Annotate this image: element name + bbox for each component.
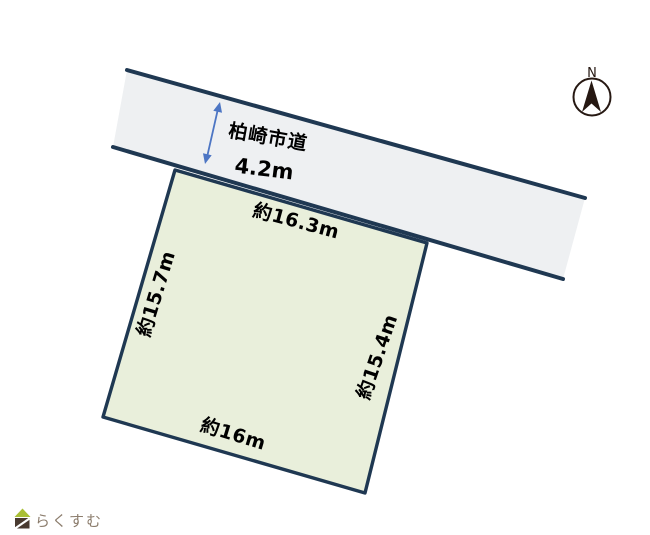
logo-roof (15, 509, 31, 518)
north-compass: N (574, 66, 611, 116)
land-plot-diagram: 柏崎市道 4.2m 約16.3m 約15.7m 約15.4m 約16m N らく… (0, 0, 650, 535)
logo-text: らくすむ (35, 512, 103, 530)
logo-house-icon (15, 509, 31, 529)
site-plan-canvas: 柏崎市道 4.2m 約16.3m 約15.7m 約15.4m 約16m N らく… (0, 0, 650, 535)
rakusumu-logo: らくすむ (15, 509, 104, 531)
